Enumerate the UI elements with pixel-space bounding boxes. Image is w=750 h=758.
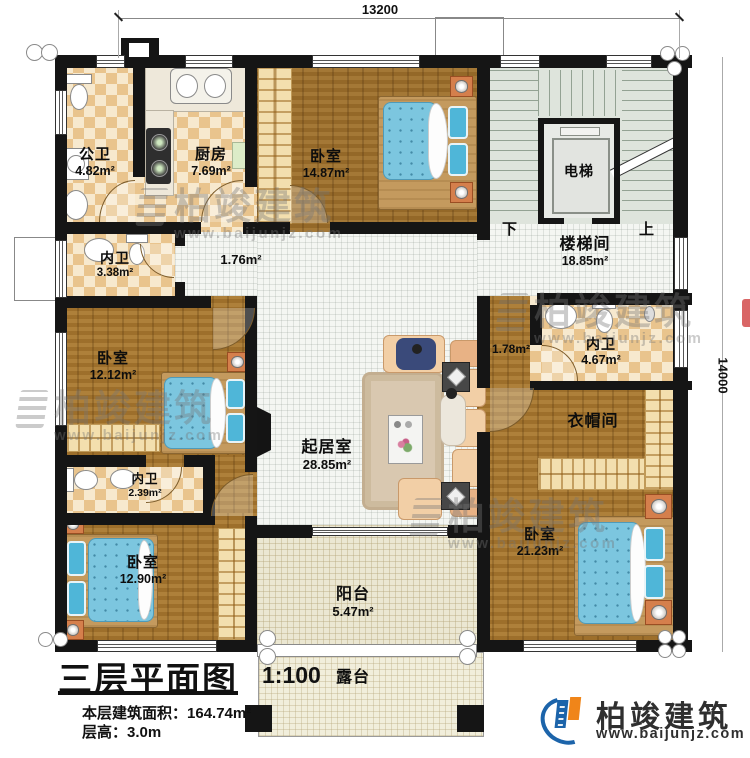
title-underline: [58, 691, 238, 695]
wall: [330, 222, 477, 234]
floor-area-label: 本层建筑面积：: [82, 705, 187, 722]
kitchen-sink-basin: [204, 74, 226, 98]
tv: [257, 407, 271, 457]
dimension-line-top: [118, 18, 680, 19]
railing-post: [459, 648, 476, 665]
exterior-plant: [675, 46, 690, 61]
wardrobe: [645, 388, 675, 490]
window: [97, 640, 217, 652]
toilet-bowl: [70, 84, 88, 110]
exterior-plant: [672, 644, 686, 658]
window: [185, 55, 233, 68]
flower-decoration: [395, 438, 413, 454]
bay-window: [14, 237, 57, 301]
railing-post: [259, 630, 276, 647]
stair-flight-left: [490, 70, 538, 218]
shaft-box: [435, 17, 504, 59]
room-label-kitchen: 厨房 7.69m²: [178, 146, 244, 179]
nightstand: [450, 182, 473, 203]
wall: [477, 62, 490, 240]
window: [55, 90, 67, 135]
room-label-hallway: 1.76m²: [208, 252, 274, 268]
watermark: 柏竣建筑 www.baijunjz.com: [18, 390, 223, 445]
window: [312, 55, 420, 68]
pillow: [448, 106, 468, 139]
room-label-cloakroom: 衣帽间: [552, 412, 634, 431]
nightstand: [645, 494, 672, 519]
table-item: [405, 421, 412, 428]
exterior-plant: [53, 632, 68, 647]
dimension-width: 13200: [330, 2, 430, 17]
sink: [64, 190, 88, 220]
wall: [55, 513, 203, 525]
elevator-name: 电梯: [548, 163, 610, 180]
wall: [245, 525, 312, 538]
toilet-tank: [66, 74, 92, 84]
stair-landing: [538, 70, 622, 116]
wall: [530, 381, 692, 390]
elevator-wall: [538, 218, 564, 224]
nightstand: [645, 600, 672, 625]
exterior-plant: [667, 61, 682, 76]
kitchen-sink-basin: [176, 74, 198, 98]
room-label-bedroom-sw: 卧室 12.90m²: [106, 554, 180, 587]
pillow: [644, 527, 665, 561]
floor-height-line: 层高：3.0m: [82, 721, 161, 742]
side-table: [442, 362, 470, 392]
wall: [175, 282, 185, 296]
window: [55, 240, 67, 298]
room-label-inner-bath-sw: 内卫 2.39m²: [116, 472, 174, 500]
room-label-stairwell: 楼梯间 18.85m²: [540, 235, 630, 269]
person-head: [412, 344, 422, 354]
floor-area-line: 本层建筑面积：164.74m²: [82, 702, 251, 723]
elevator-label: 电梯: [548, 163, 610, 180]
nightstand: [450, 76, 473, 97]
wall: [133, 62, 145, 177]
window: [674, 237, 688, 290]
stairs-down-label: 下: [495, 221, 525, 239]
table-item: [394, 421, 401, 428]
dimension-height: 14000: [716, 348, 731, 404]
person-sitting: [396, 338, 436, 370]
burner: [151, 134, 168, 151]
pillow: [67, 581, 86, 616]
watermark-logo-icon: [15, 390, 48, 428]
window: [500, 55, 540, 68]
flue-inner: [129, 43, 149, 57]
watermark-logo-icon: [135, 188, 168, 226]
railing-post: [459, 630, 476, 647]
window: [96, 55, 125, 68]
watermark: 柏竣建筑 www.baijunjz.com: [138, 188, 343, 243]
floor-height-label: 层高：: [82, 724, 127, 741]
floor-plan-canvas: 电梯 下 上: [0, 0, 750, 758]
terrace-post: [457, 705, 484, 732]
window: [606, 55, 652, 68]
floor-area-value: 164.74m²: [187, 705, 251, 722]
person-head: [446, 388, 457, 399]
red-edge-mark: [742, 299, 750, 327]
window: [523, 640, 637, 652]
stairs-up-label: 上: [632, 221, 662, 239]
pillow: [67, 541, 86, 576]
wall: [55, 455, 146, 467]
exterior-plant: [660, 46, 675, 61]
elevator-wall: [538, 118, 544, 224]
pillow: [448, 143, 468, 176]
watermark: 柏竣建筑 www.baijunjz.com: [412, 498, 617, 553]
toilet-bowl: [74, 470, 98, 490]
exterior-plant: [38, 632, 53, 647]
floor-height-value: 3.0m: [127, 724, 161, 741]
logo-brand-url: www.baijunjz.com: [596, 726, 745, 742]
pillow: [226, 413, 245, 443]
wall: [55, 296, 211, 308]
exterior-plant: [658, 644, 672, 658]
room-label-living: 起居室 28.85m²: [290, 438, 364, 473]
room-label-bedroom-north: 卧室 14.87m²: [290, 148, 362, 181]
room-label-inner-bath-north: 内卫 3.38m²: [84, 250, 146, 281]
exterior-plant: [658, 630, 672, 644]
balcony-railing: [257, 644, 477, 657]
watermark-logo-icon: [409, 498, 442, 536]
room-label-terrace: 露台: [318, 668, 388, 687]
elevator-wall: [614, 118, 620, 224]
wall: [245, 62, 257, 187]
room-label-public-bath: 公卫 4.82m²: [62, 146, 128, 179]
elevator-wall: [538, 118, 620, 124]
elevator-door: [560, 127, 600, 136]
plan-scale: 1:100: [262, 662, 321, 689]
room-label-balcony: 阳台 5.47m²: [318, 585, 388, 620]
pillow: [226, 379, 245, 409]
exterior-plant: [672, 630, 686, 644]
room-label-bedroom-west: 卧室 12.12m²: [78, 350, 148, 383]
watermark-logo-icon: [495, 293, 528, 331]
pillow: [644, 565, 665, 599]
wardrobe: [538, 458, 645, 490]
person-lying: [440, 394, 466, 446]
elevator-wall: [592, 218, 620, 224]
watermark: 柏竣建筑 www.baijunjz.com: [498, 293, 703, 348]
burner: [151, 160, 168, 177]
exterior-plant: [41, 44, 58, 61]
